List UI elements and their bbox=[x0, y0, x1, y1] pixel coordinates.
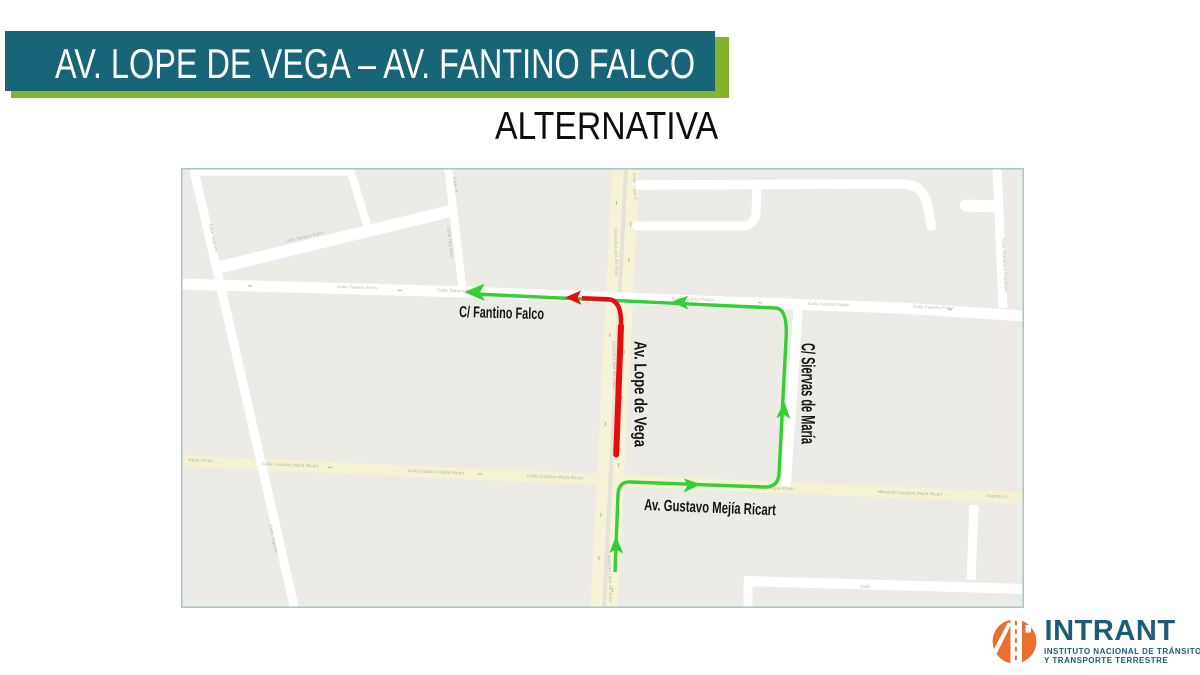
svg-text:INSTITUTO NACIONAL DE TRÁNSITO: INSTITUTO NACIONAL DE TRÁNSITO bbox=[1044, 647, 1200, 656]
svg-text:Av. Lope de Vega: Av. Lope de Vega bbox=[630, 341, 650, 447]
svg-text:INTRANT: INTRANT bbox=[1045, 615, 1176, 647]
svg-text:C/ Siervas de María: C/ Siervas de María bbox=[797, 343, 818, 444]
svg-text:C/ Fantino Falco: C/ Fantino Falco bbox=[459, 303, 544, 323]
svg-text:Avenida G.: Avenida G. bbox=[986, 493, 1009, 499]
svg-text:Calle: Calle bbox=[860, 584, 871, 589]
svg-text:Calle Lope V.: Calle Lope V. bbox=[632, 173, 638, 201]
svg-text:Y TRANSPORTE TERRESTRE: Y TRANSPORTE TERRESTRE bbox=[1044, 656, 1168, 665]
